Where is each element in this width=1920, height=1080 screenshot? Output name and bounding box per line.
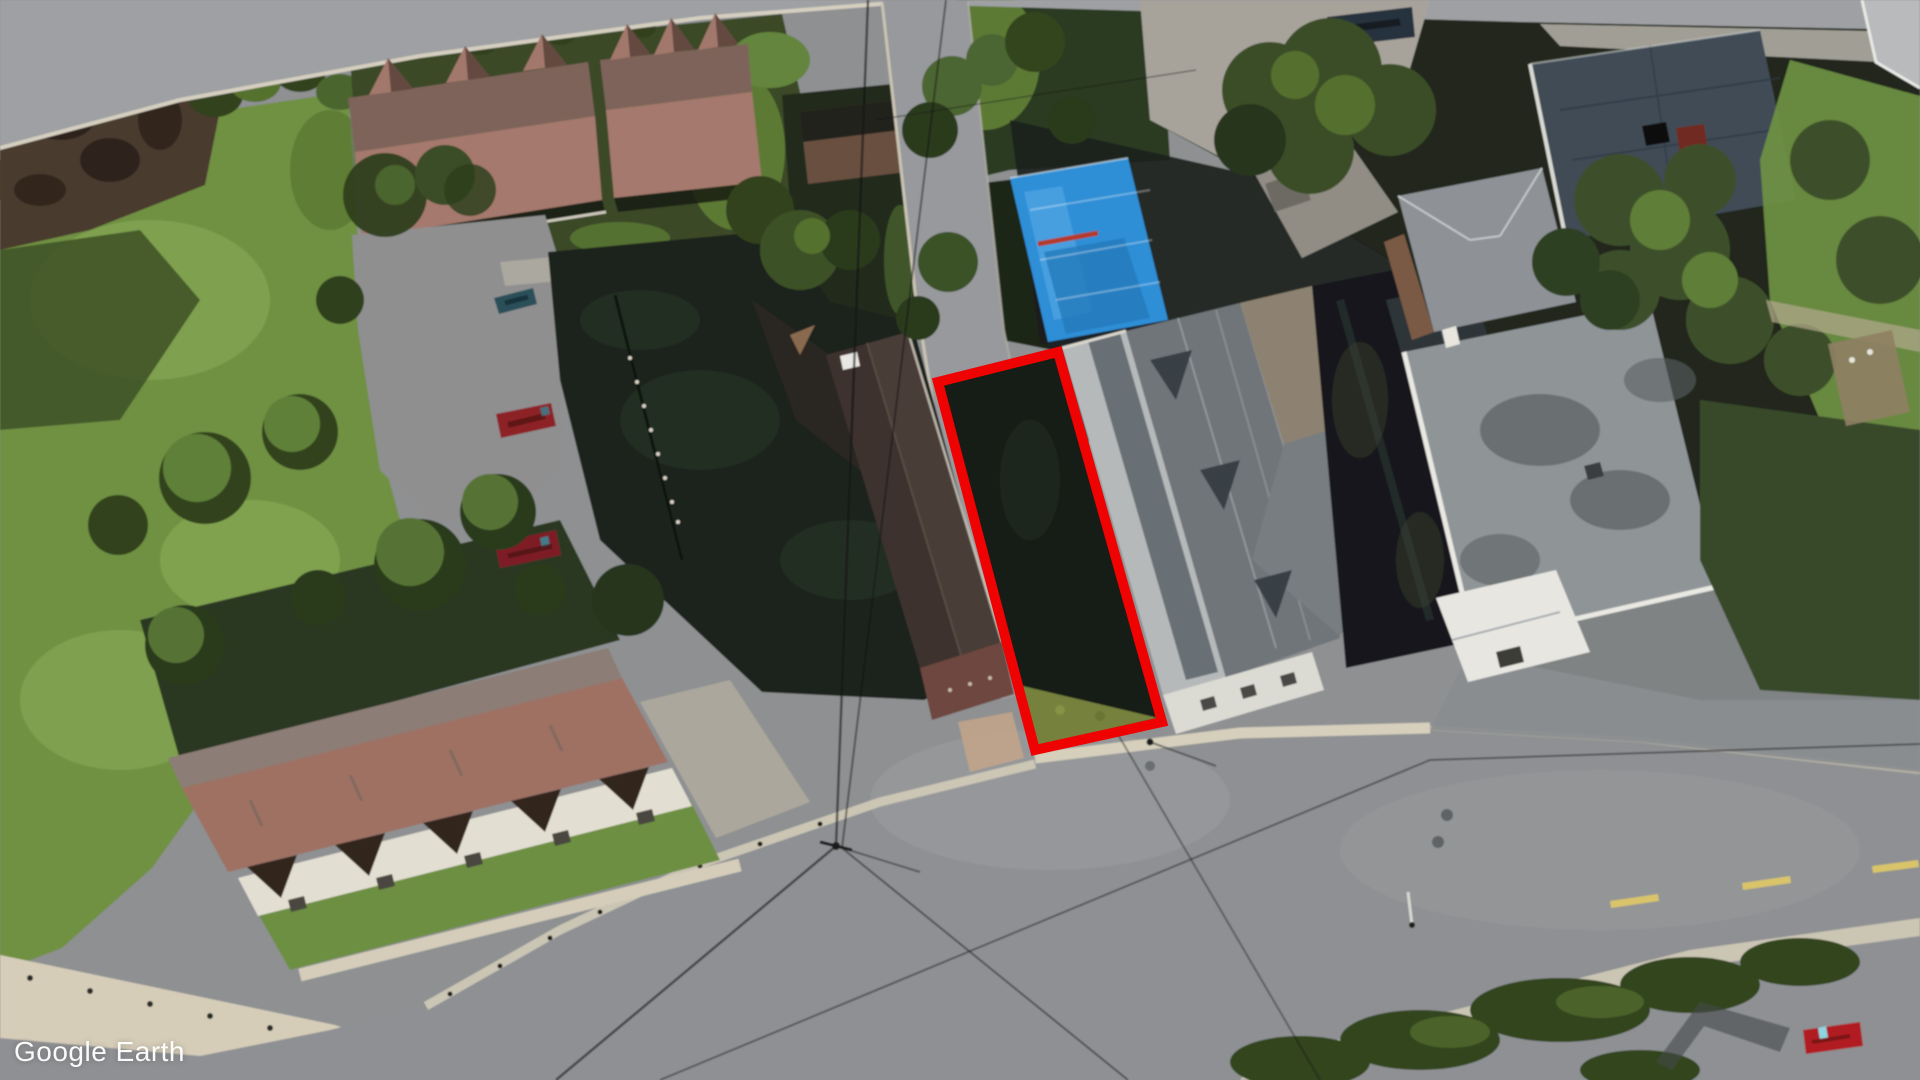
brown-roof-shed xyxy=(800,100,906,184)
aerial-photo-scene xyxy=(0,0,1920,1080)
google-earth-watermark: Google Earth xyxy=(14,1036,185,1068)
watermark-text: Google Earth xyxy=(14,1036,185,1067)
google-earth-viewport[interactable]: Google Earth xyxy=(0,0,1920,1080)
aerial-imagery-canvas[interactable] xyxy=(0,0,1920,1080)
